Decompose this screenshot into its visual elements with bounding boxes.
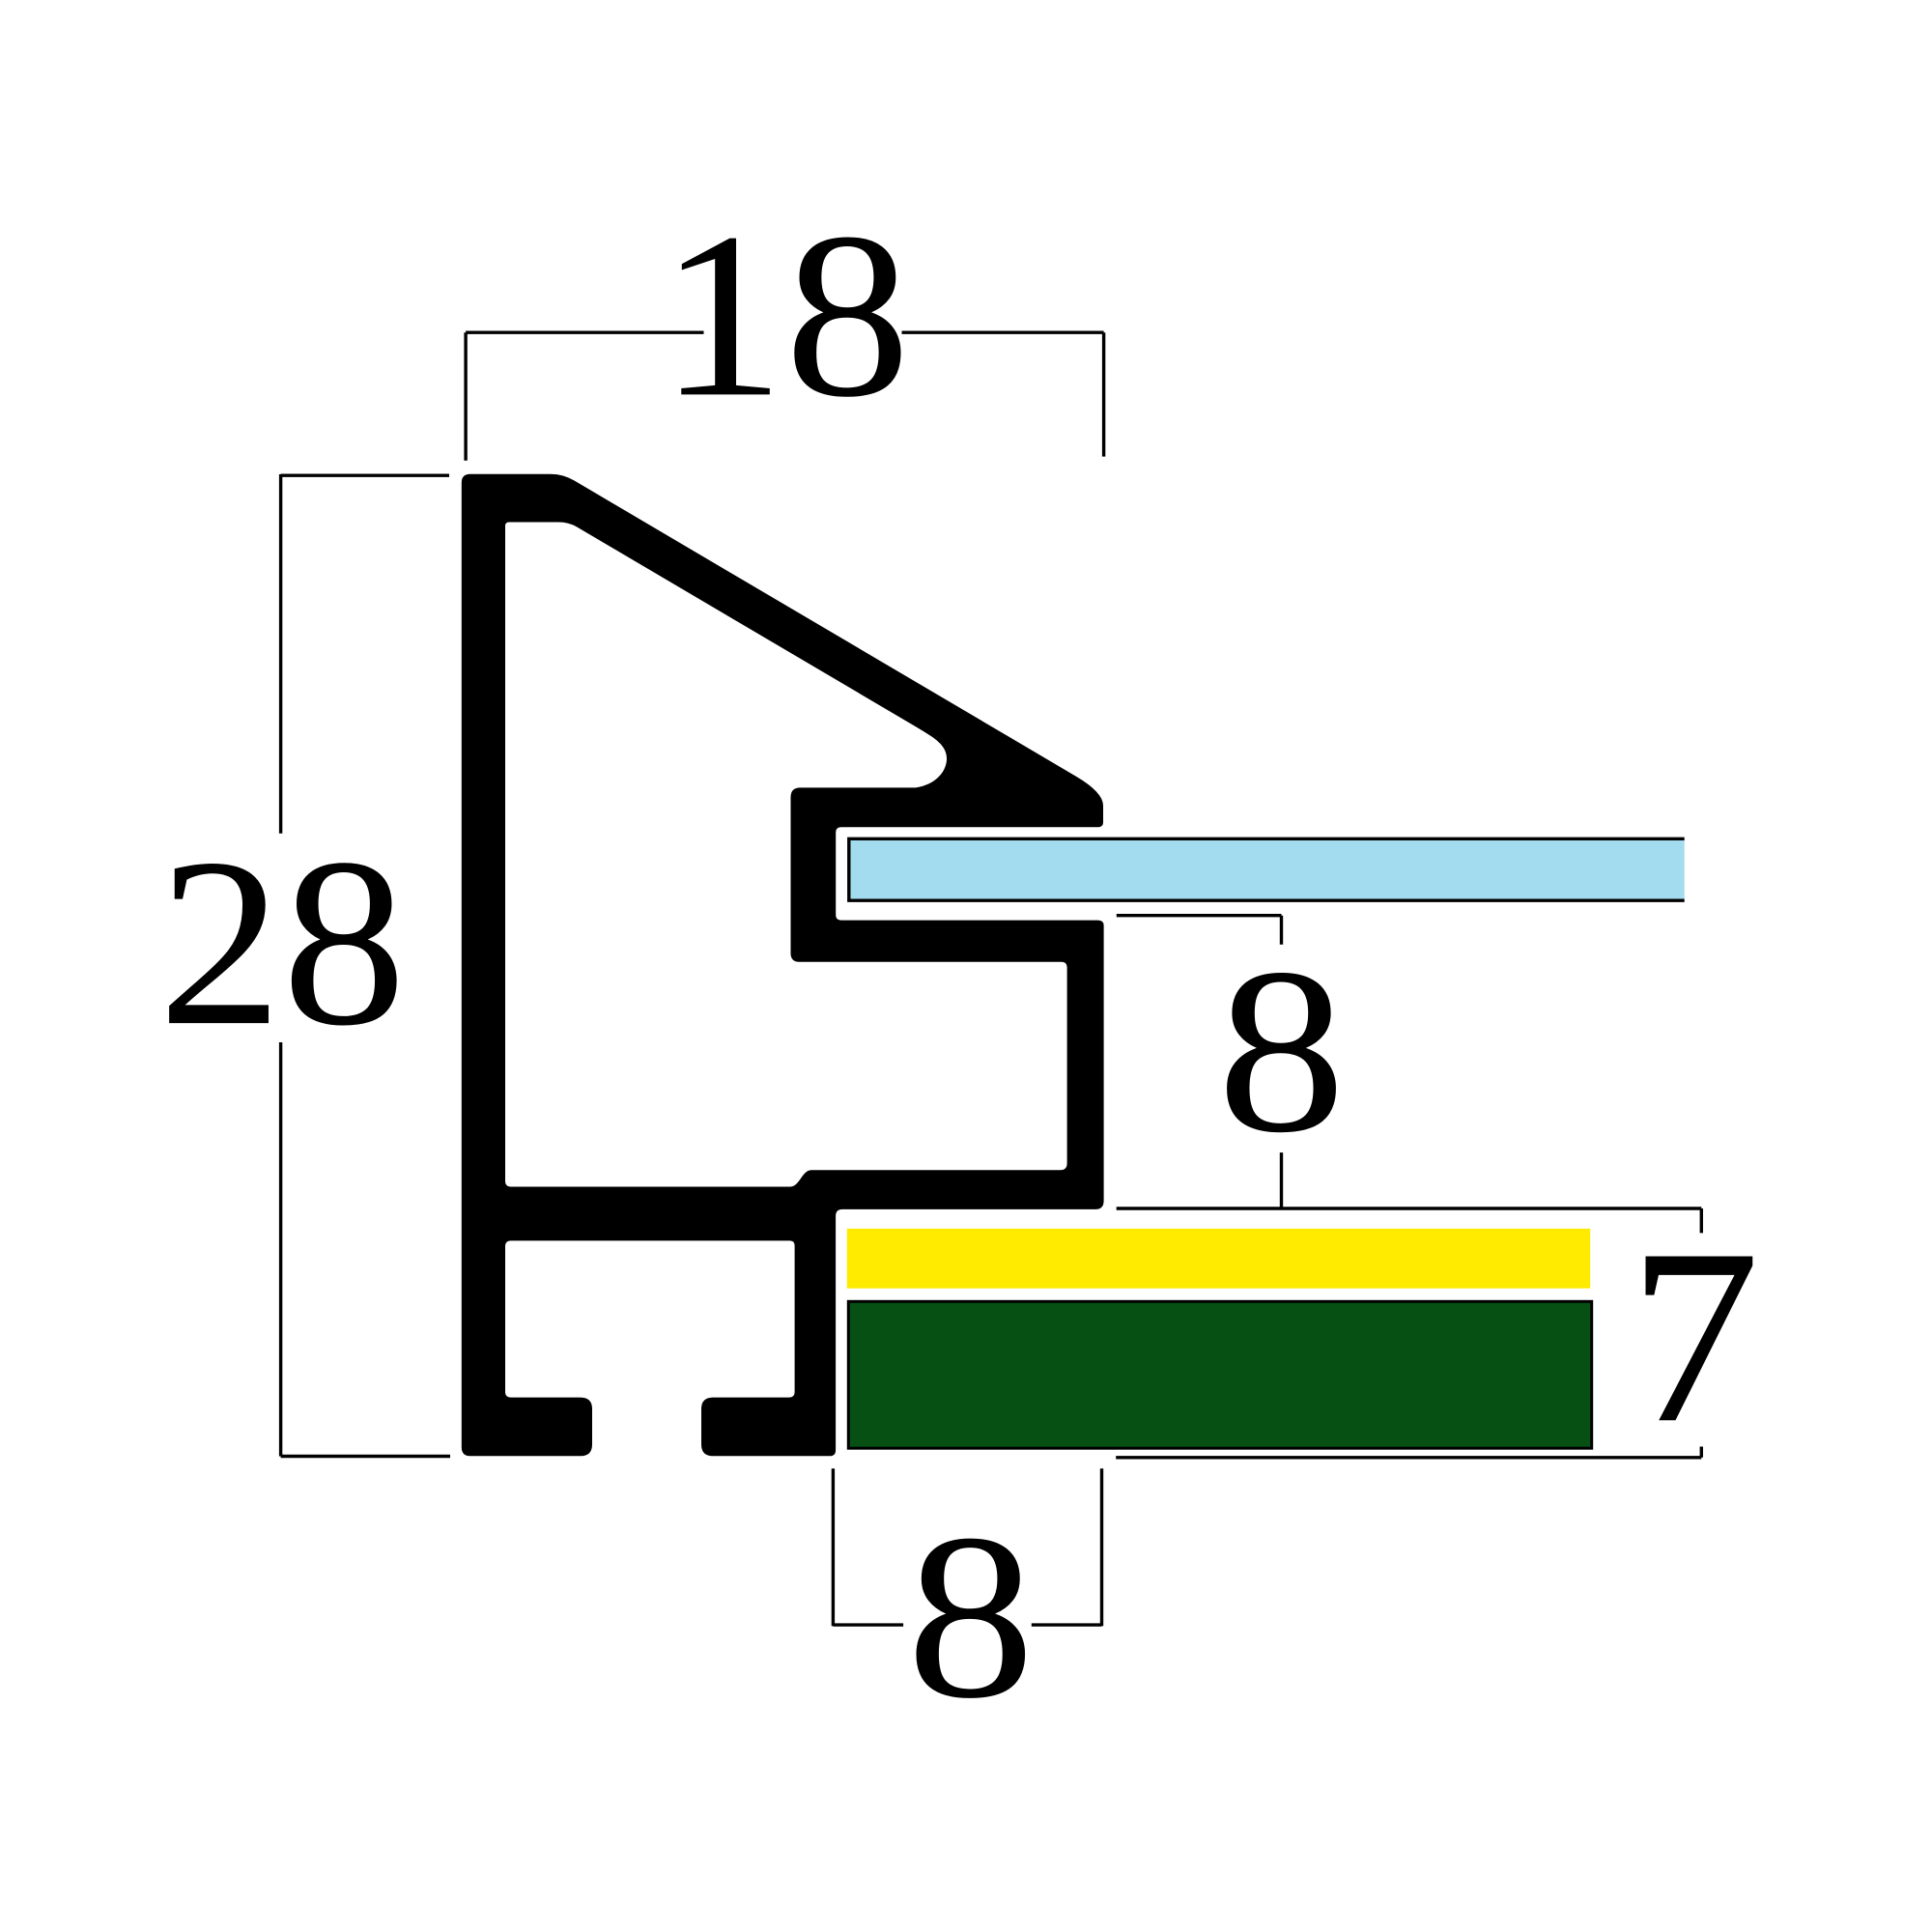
svg-text:8: 8 — [1217, 921, 1346, 1182]
svg-text:18: 18 — [659, 184, 910, 446]
svg-text:7: 7 — [1629, 1197, 1761, 1474]
svg-text:28: 28 — [158, 809, 406, 1075]
svg-text:8: 8 — [906, 1486, 1035, 1747]
